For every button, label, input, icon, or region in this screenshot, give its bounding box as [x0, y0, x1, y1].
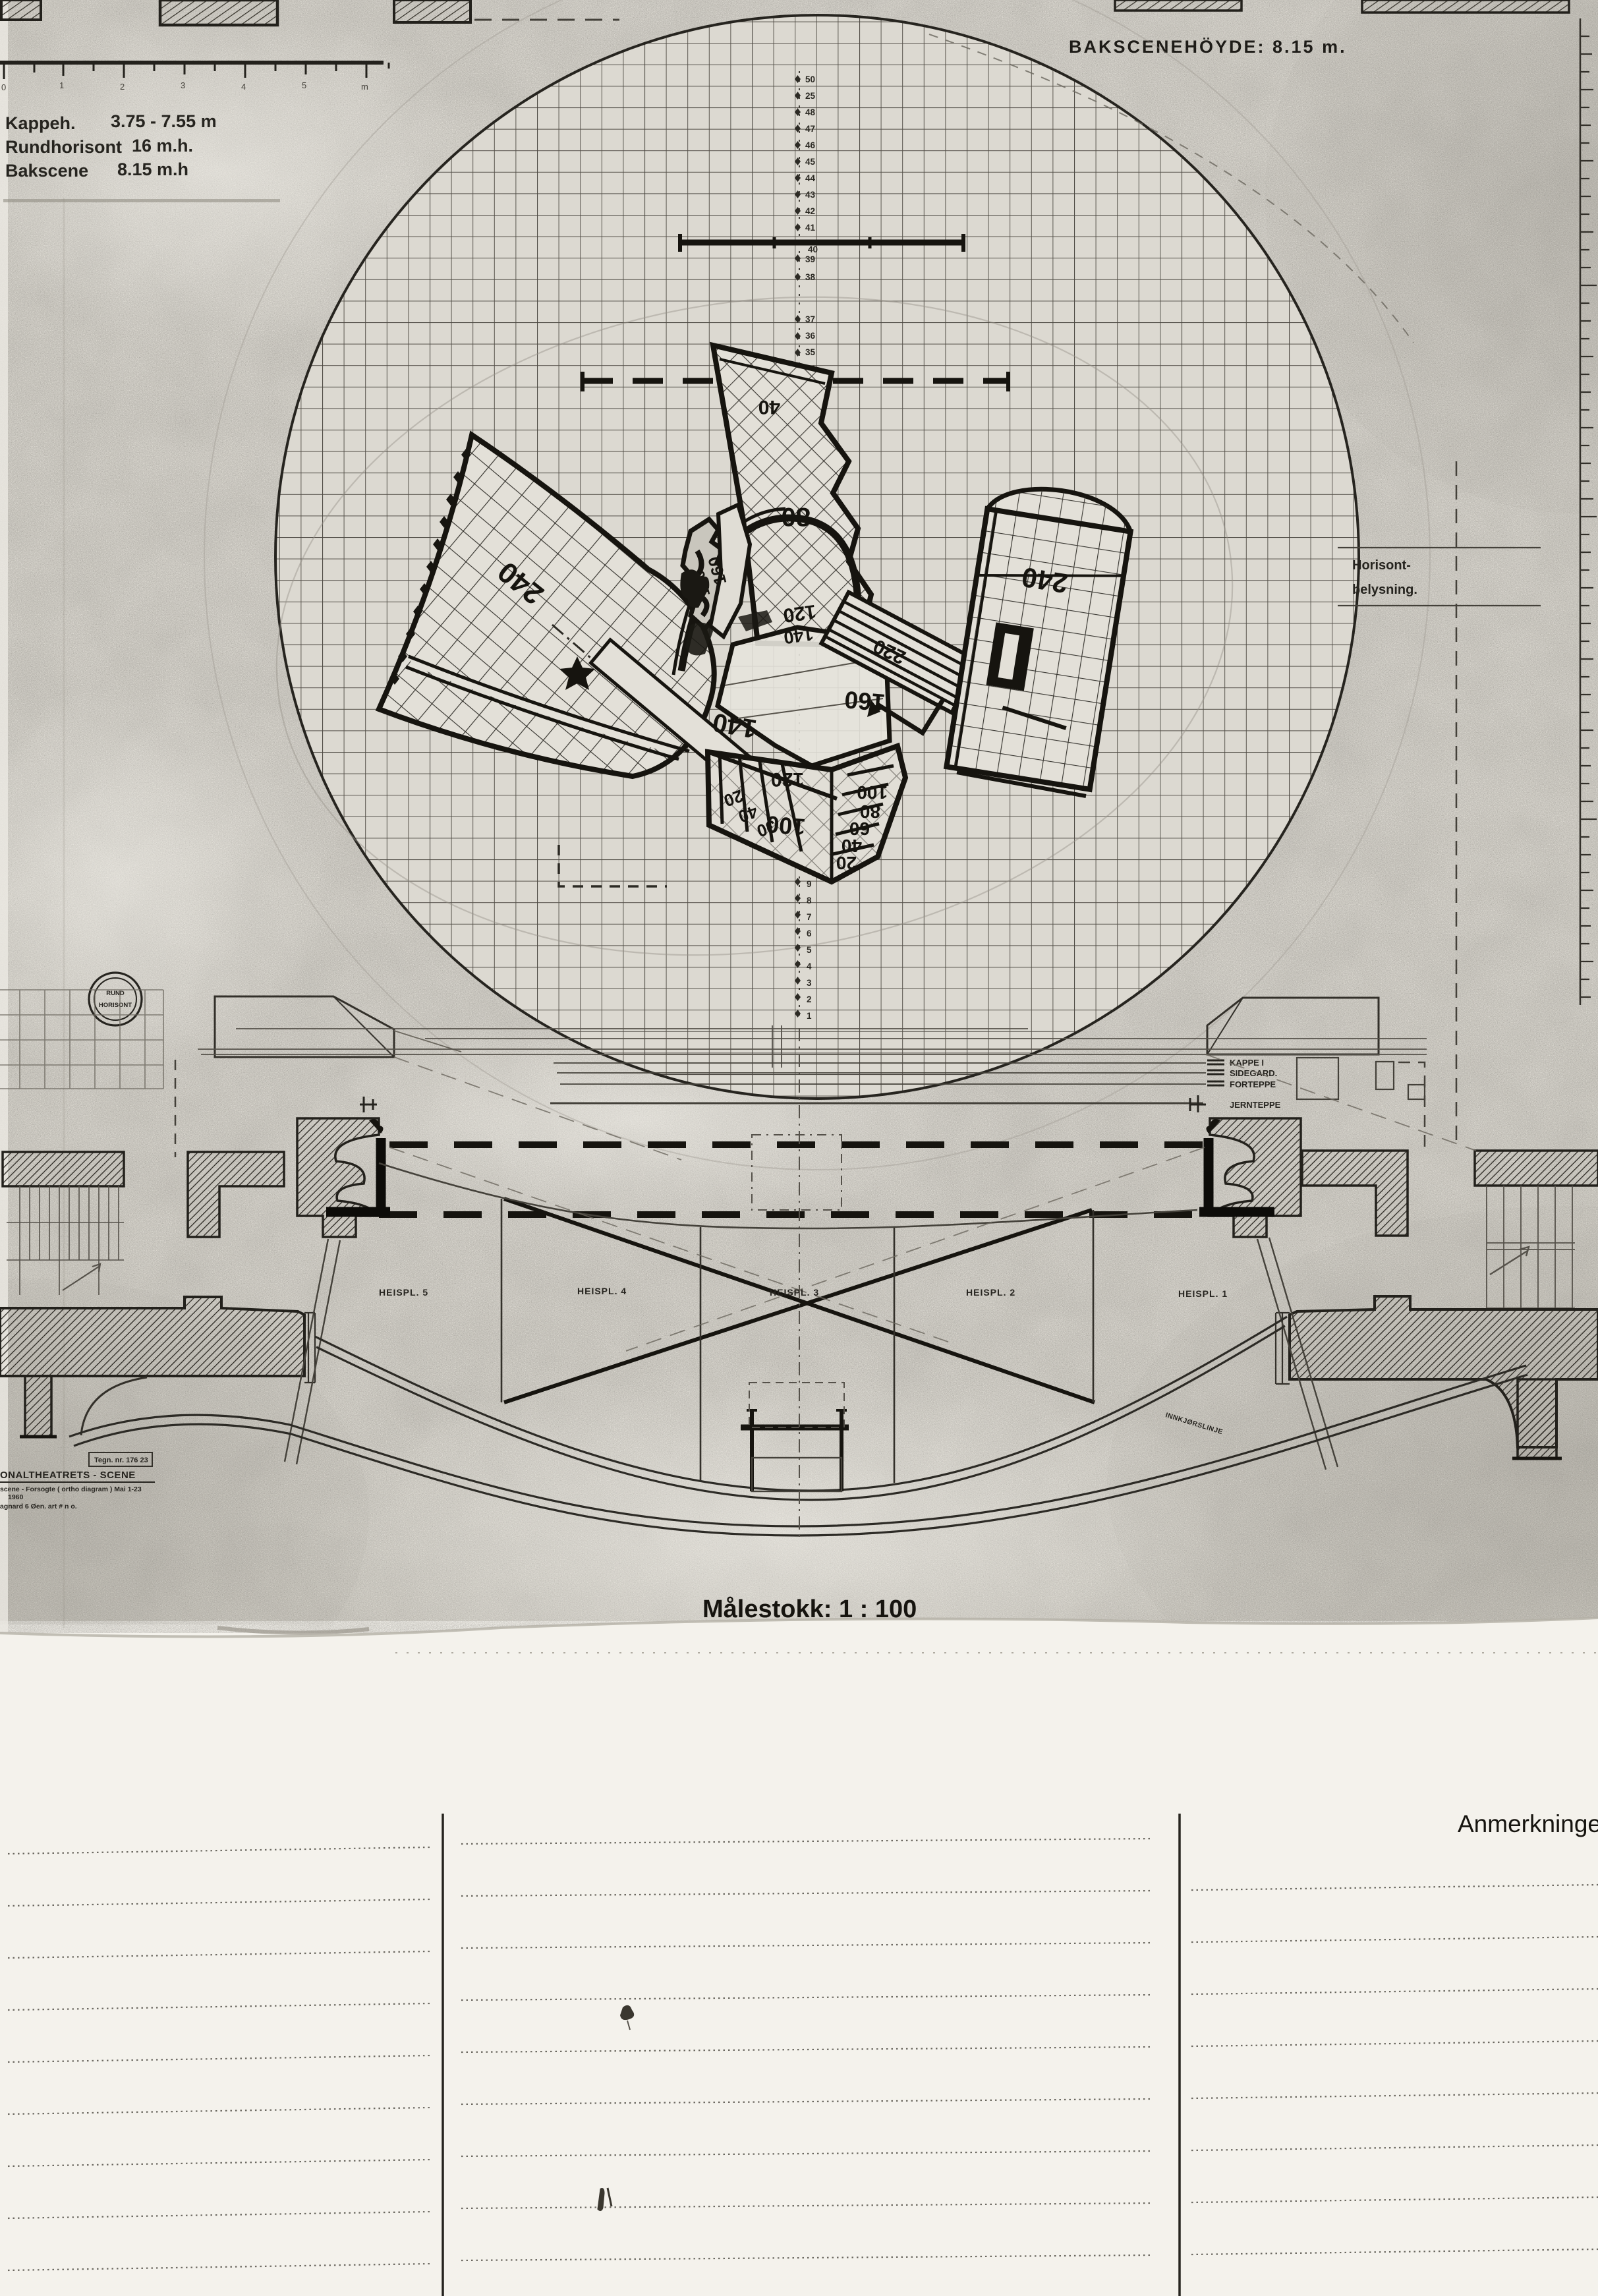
svg-text:7: 7	[807, 912, 812, 922]
svg-text:Bakscene: Bakscene	[5, 161, 88, 181]
svg-text:16 m.h.: 16 m.h.	[132, 136, 193, 156]
svg-text:36: 36	[805, 331, 816, 341]
svg-text:Rundhorisont: Rundhorisont	[5, 137, 122, 157]
svg-text:41: 41	[805, 223, 816, 233]
svg-text:48: 48	[805, 107, 816, 117]
svg-text:42: 42	[805, 206, 815, 216]
svg-text:3: 3	[181, 80, 185, 90]
svg-text:HEISPL. 5: HEISPL. 5	[379, 1287, 428, 1298]
svg-text:25: 25	[805, 91, 816, 101]
svg-text:2: 2	[807, 994, 812, 1004]
svg-text:40: 40	[758, 396, 780, 418]
svg-text:120: 120	[782, 600, 817, 627]
svg-text:Anmerkninge: Anmerkninge	[1458, 1810, 1598, 1837]
svg-text:45: 45	[805, 157, 816, 167]
svg-text:37: 37	[805, 314, 815, 324]
svg-text:47: 47	[805, 124, 815, 134]
svg-text:9: 9	[807, 879, 812, 889]
svg-text:1: 1	[59, 80, 64, 90]
svg-text:46: 46	[805, 140, 816, 150]
svg-text:8.15 m.h: 8.15 m.h	[117, 159, 188, 179]
svg-text:KAPPE I: KAPPE I	[1230, 1058, 1264, 1068]
svg-text:FORTEPPE: FORTEPPE	[1230, 1079, 1276, 1089]
svg-text:HEISPL. 3: HEISPL. 3	[770, 1287, 819, 1298]
svg-text:Kappeh.: Kappeh.	[5, 113, 76, 133]
svg-text:HORISONT: HORISONT	[99, 1002, 132, 1009]
svg-text:HEISPL. 2: HEISPL. 2	[966, 1287, 1015, 1298]
svg-text:140: 140	[782, 624, 814, 648]
svg-text:SIDEGARD.: SIDEGARD.	[1230, 1068, 1277, 1078]
svg-text:m: m	[361, 82, 368, 92]
svg-text:HEISPL. 1: HEISPL. 1	[1178, 1288, 1228, 1299]
svg-text:HEISPL. 4: HEISPL. 4	[577, 1286, 627, 1296]
svg-text:43: 43	[805, 190, 816, 200]
svg-text:5: 5	[302, 80, 306, 90]
svg-text:agnard 6 Øen. art # n o.: agnard 6 Øen. art # n o.	[0, 1503, 77, 1510]
svg-text:4: 4	[807, 961, 812, 971]
svg-text:100: 100	[764, 811, 806, 841]
svg-text:5: 5	[807, 945, 812, 955]
svg-text:38: 38	[805, 272, 816, 282]
svg-text:50: 50	[805, 74, 815, 84]
svg-text:4: 4	[241, 82, 246, 92]
svg-text:39: 39	[805, 254, 815, 264]
svg-text:RUND: RUND	[106, 990, 125, 997]
svg-text:44: 44	[805, 173, 816, 183]
svg-text:2: 2	[120, 82, 125, 92]
svg-text:scene - Forsogte ( ortho diagr: scene - Forsogte ( ortho diagram ) Mai 1…	[0, 1485, 142, 1493]
svg-text:JERNTEPPE: JERNTEPPE	[1230, 1100, 1281, 1110]
svg-text:3.75 - 7.55 m: 3.75 - 7.55 m	[111, 111, 217, 131]
svg-text:8: 8	[807, 896, 812, 905]
svg-text:40: 40	[808, 244, 818, 254]
svg-text:Tegn. nr. 176 23: Tegn. nr. 176 23	[94, 1456, 148, 1464]
svg-text:100: 100	[857, 782, 888, 803]
svg-text:6: 6	[807, 929, 812, 938]
svg-text:1: 1	[807, 1011, 812, 1021]
svg-text:20: 20	[836, 853, 857, 873]
svg-text:BAKSCENEHÖYDE: 8.15 m.: BAKSCENEHÖYDE: 8.15 m.	[1069, 37, 1347, 57]
svg-text:Horisont-: Horisont-	[1352, 558, 1411, 573]
svg-text:3: 3	[807, 978, 812, 988]
svg-text:ONALTHEATRETS - SCENE: ONALTHEATRETS - SCENE	[0, 1470, 136, 1481]
svg-text:belysning.: belysning.	[1352, 583, 1417, 597]
svg-text:35: 35	[805, 347, 816, 357]
svg-text:120: 120	[771, 768, 804, 790]
svg-text:0: 0	[1, 82, 6, 92]
svg-text:1960: 1960	[8, 1493, 24, 1501]
